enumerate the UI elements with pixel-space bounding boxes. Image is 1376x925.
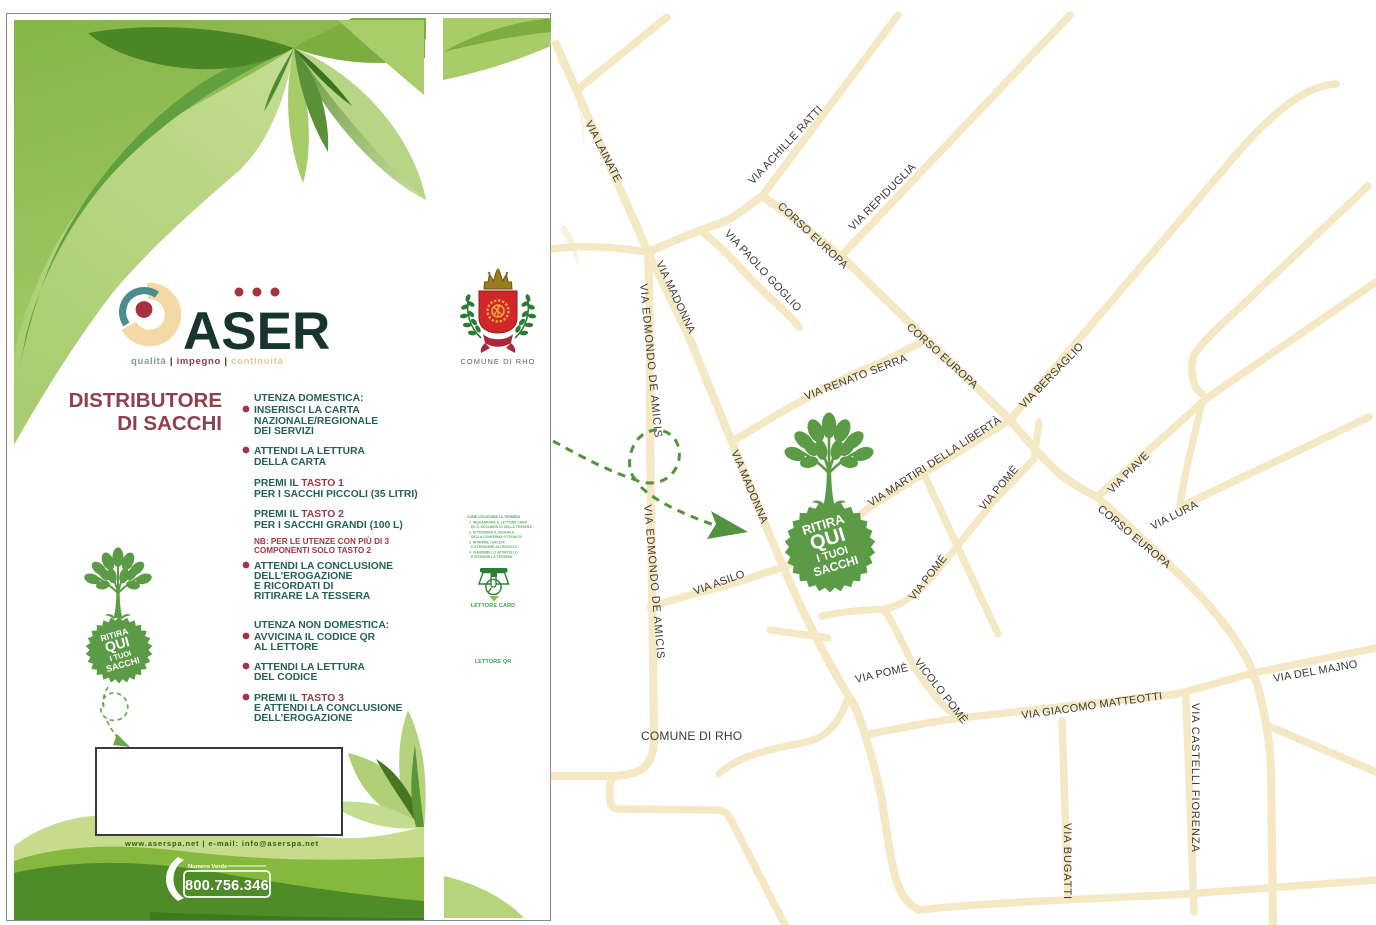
svg-text:qualità | impegno | continuità: qualità | impegno | continuità — [131, 356, 283, 367]
svg-text:DI SACCHI: DI SACCHI — [117, 412, 222, 435]
svg-text:DELLA CARTA: DELLA CARTA — [254, 457, 327, 468]
svg-text:E RITIRARE LA TESSERA: E RITIRARE LA TESSERA — [471, 555, 513, 559]
svg-text:DEL CODICE: DEL CODICE — [254, 672, 317, 683]
svg-text:DISTRIBUTORE: DISTRIBUTORE — [69, 389, 222, 412]
svg-text:INSERISCI LA CARTA: INSERISCI LA CARTA — [254, 405, 360, 416]
svg-text:DELLA CONFERMA OTTENUTA: DELLA CONFERMA OTTENUTA — [471, 535, 522, 539]
svg-text:COME UTILIZZARE LA TESSERA: COME UTILIZZARE LA TESSERA — [467, 515, 521, 519]
svg-text:DEI SERVIZI: DEI SERVIZI — [254, 426, 314, 437]
svg-text:PER I SACCHI PICCOLI (35 LITRI: PER I SACCHI PICCOLI (35 LITRI) — [254, 489, 418, 500]
svg-text:UTENZA DOMESTICA:: UTENZA DOMESTICA: — [254, 393, 363, 404]
svg-text:NB: PER LE UTENZE CON PIÙ DI 3: NB: PER LE UTENZE CON PIÙ DI 3 — [254, 535, 390, 546]
svg-text:ATTENDI LA LETTURA: ATTENDI LA LETTURA — [254, 446, 366, 457]
svg-text:RITIRARE LA TESSERA: RITIRARE LA TESSERA — [254, 591, 371, 602]
svg-text:UTENZA NON DOMESTICA:: UTENZA NON DOMESTICA: — [254, 620, 389, 631]
svg-text:LETTORE CARD: LETTORE CARD — [471, 603, 516, 609]
svg-text:E ATTENDERE GLI EROGATI: E ATTENDERE GLI EROGATI — [471, 545, 517, 549]
svg-text:2. ATTENDERE IL SEGNALE: 2. ATTENDERE IL SEGNALE — [469, 531, 515, 535]
svg-text:PREMI IL TASTO 2: PREMI IL TASTO 2 — [254, 509, 344, 520]
svg-text:800.756.346: 800.756.346 — [185, 878, 269, 894]
svg-text:VIA CASTELLI FIORENZA: VIA CASTELLI FIORENZA — [1189, 703, 1201, 853]
svg-text:COMUNE DI RHO: COMUNE DI RHO — [460, 357, 535, 366]
svg-text:4. CHIUDERE LO SPORTELLO: 4. CHIUDERE LO SPORTELLO — [469, 551, 518, 555]
svg-text:VIA BUGATTI: VIA BUGATTI — [1061, 823, 1073, 900]
svg-text:www.aserspa.net | e-mail: info: www.aserspa.net | e-mail: info@aserspa.n… — [124, 839, 319, 848]
svg-text:COMPONENTI SOLO TASTO 2: COMPONENTI SOLO TASTO 2 — [254, 546, 372, 555]
svg-text:ASER: ASER — [183, 302, 330, 361]
svg-text:COMUNE DI RHO: COMUNE DI RHO — [641, 729, 742, 743]
svg-text:3. RITIRARE I SACCHI: 3. RITIRARE I SACCHI — [469, 541, 505, 545]
svg-text:1. INQUADRARE IL LETTORE CARD: 1. INQUADRARE IL LETTORE CARD — [469, 521, 528, 525]
svg-text:PER I SACCHI GRANDI (100 L): PER I SACCHI GRANDI (100 L) — [254, 520, 403, 531]
svg-text:Numero Verde: Numero Verde — [188, 864, 228, 870]
svg-text:DELL’EROGAZIONE: DELL’EROGAZIONE — [254, 713, 353, 724]
svg-text:PREMI IL TASTO 1: PREMI IL TASTO 1 — [254, 478, 344, 489]
svg-text:ED IL DOCUMENTO DELLA TESSERA: ED IL DOCUMENTO DELLA TESSERA — [471, 525, 532, 529]
svg-text:LETTORE QR: LETTORE QR — [475, 659, 512, 665]
svg-text:AL LETTORE: AL LETTORE — [254, 642, 318, 653]
